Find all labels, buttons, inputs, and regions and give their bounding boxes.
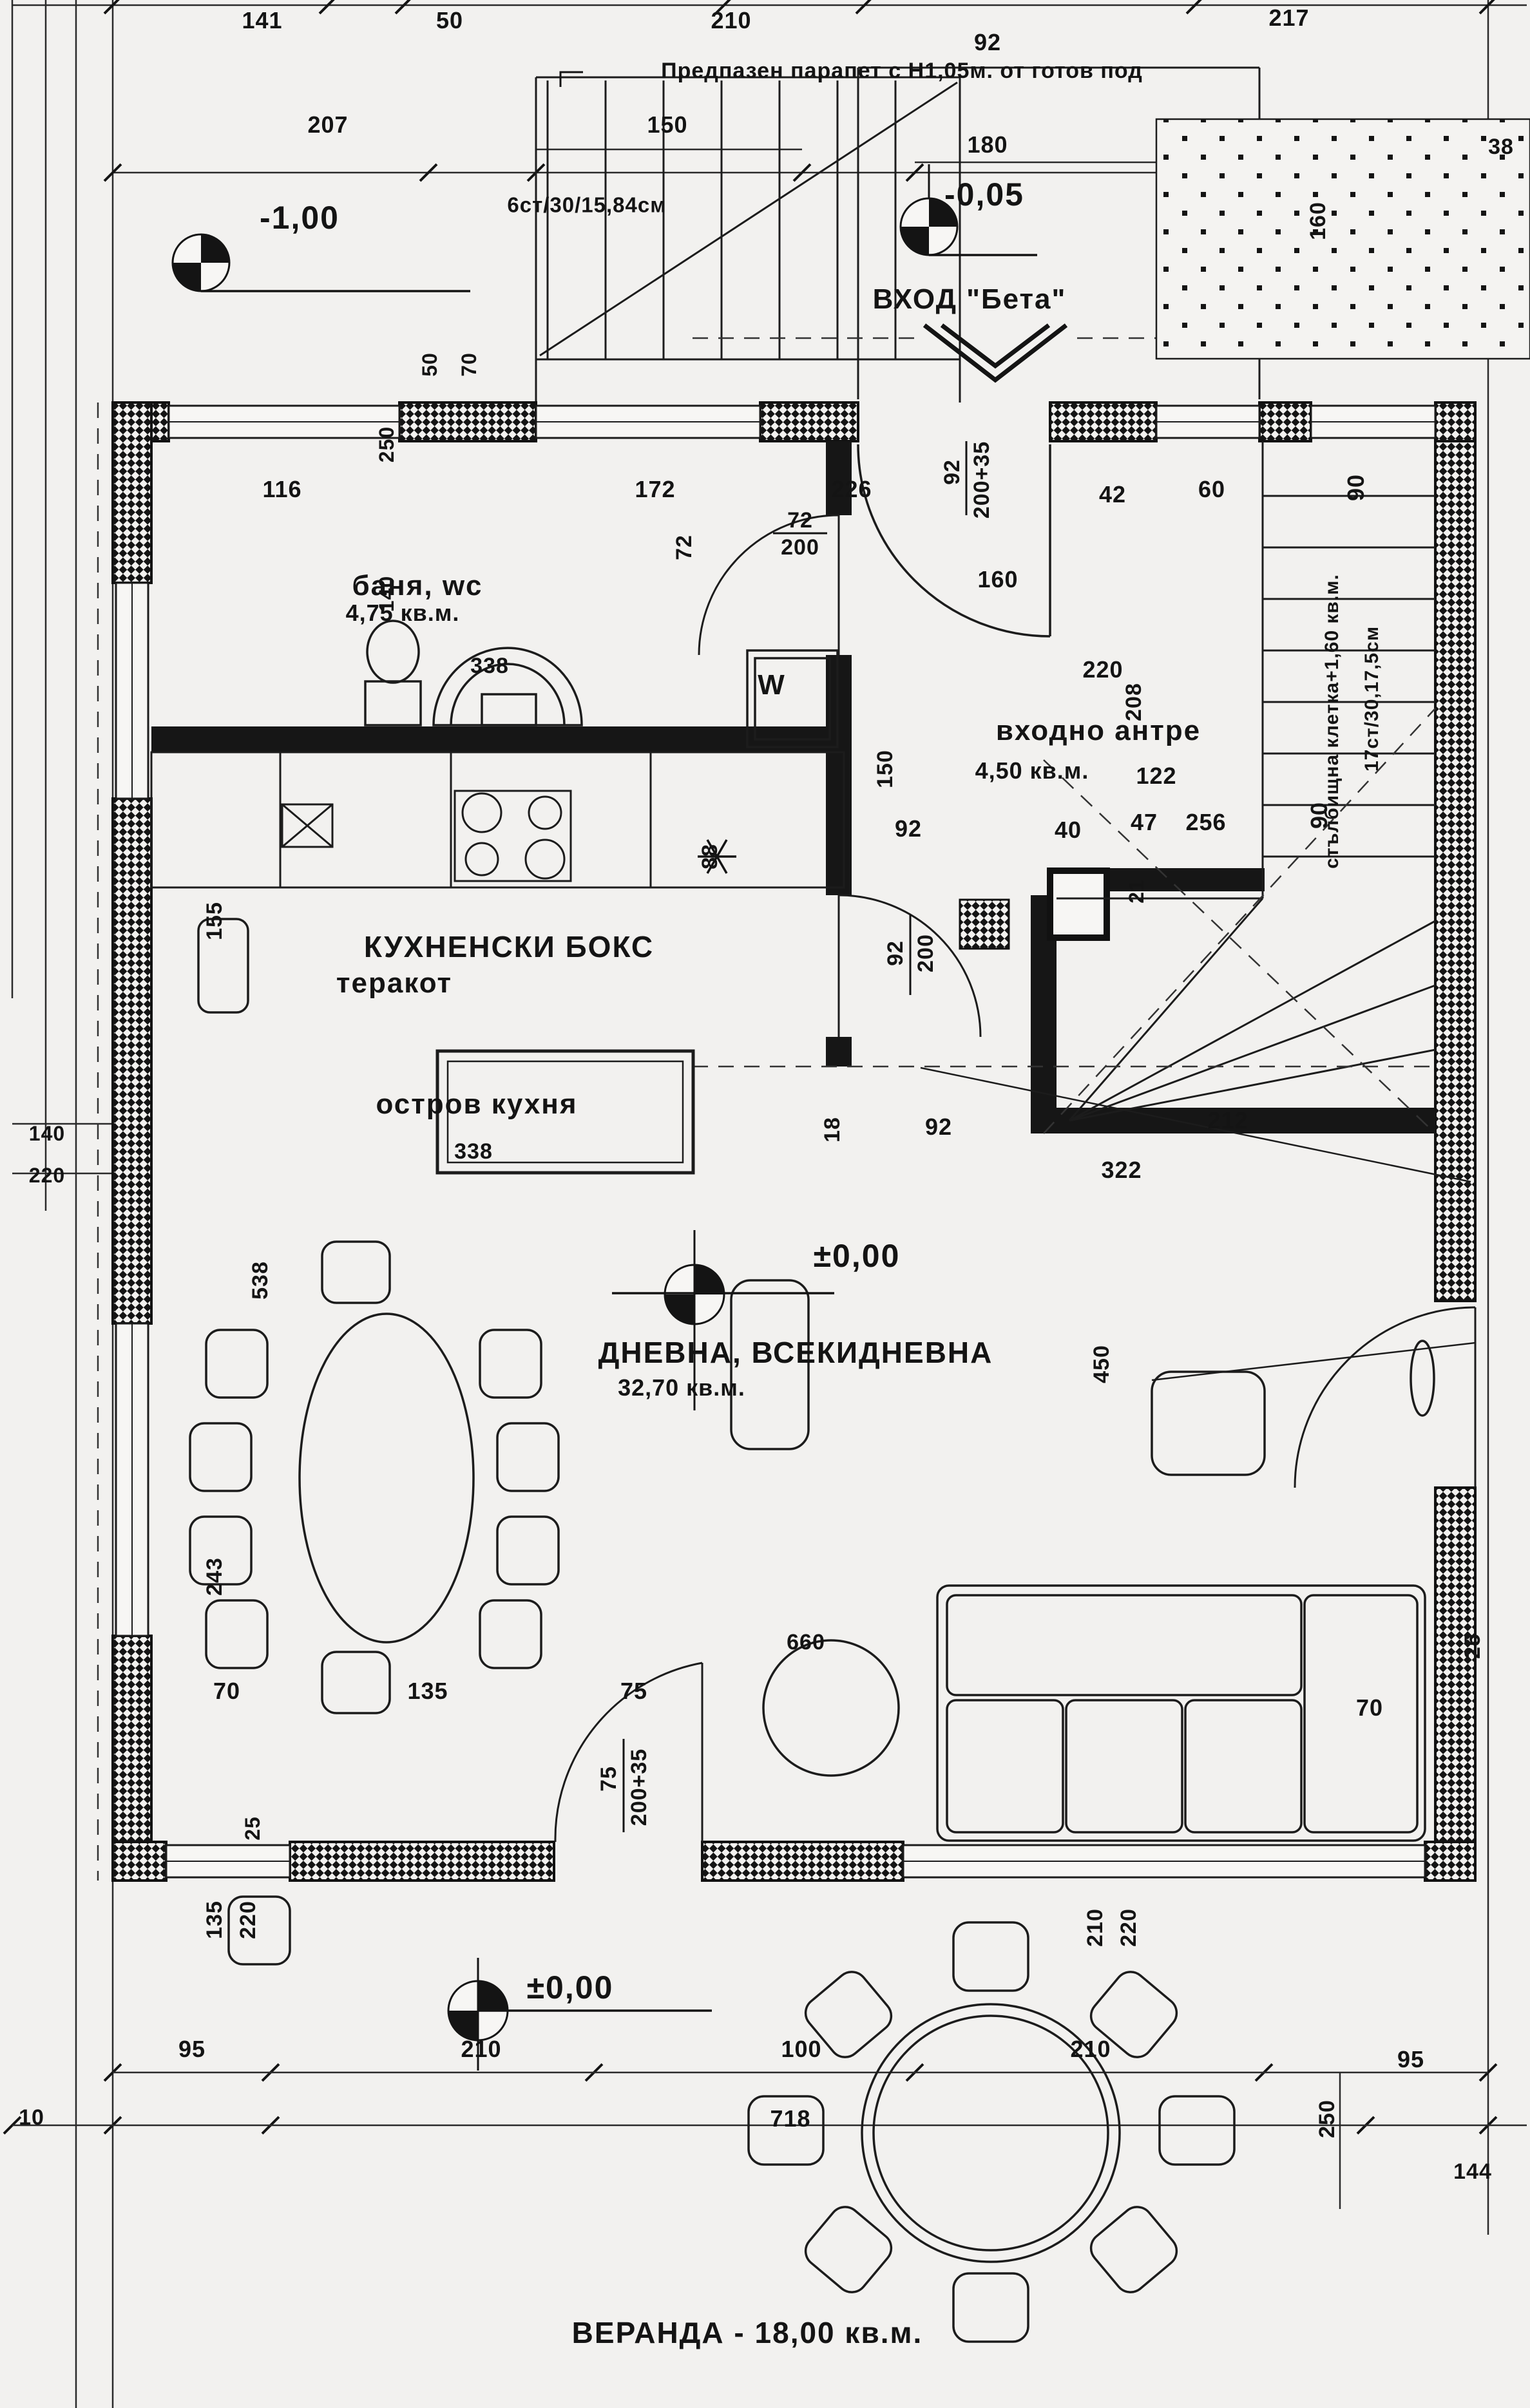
door-72: 72 [787, 509, 813, 531]
bathroom-label: баня, wc [352, 572, 483, 600]
dim-160-hall: 160 [977, 568, 1018, 591]
dim-95-b: 95 [1397, 2048, 1424, 2071]
door-75-w: 75 [598, 1766, 620, 1792]
dim-220-rot-b: 220 [1118, 1908, 1140, 1947]
level-minus-005: -0,05 [944, 178, 1024, 211]
dim-92-hall: 92 [895, 817, 922, 840]
floor-plan-labels: 1415021092217Предпазен парапет с H1,05м.… [0, 0, 1530, 2408]
dim-10: 10 [19, 2107, 44, 2128]
floor-plan-page: 1415021092217Предпазен парапет с H1,05м.… [0, 0, 1530, 2408]
dim-47: 47 [1131, 811, 1158, 834]
dim-50-top: 50 [436, 9, 463, 32]
dim-212: 212 [1207, 1109, 1248, 1132]
living-area: 32,70 кв.м. [618, 1376, 745, 1399]
living-label: ДНЕВНА, ВСЕКИДНЕВНА [598, 1338, 993, 1367]
dim-210-b: 210 [461, 2038, 501, 2061]
dim-21: 21 [1126, 879, 1147, 904]
dim-60: 60 [1198, 478, 1225, 501]
dim-150-stair: 150 [647, 113, 687, 137]
dim-180: 180 [967, 133, 1008, 156]
island-label: остров кухня [376, 1090, 577, 1119]
dim-140-left: 140 [29, 1123, 65, 1144]
dim-660: 660 [787, 1631, 825, 1653]
dim-250-window: 250 [376, 426, 397, 462]
dim-141: 141 [242, 9, 282, 32]
kitchen-label: КУХНЕНСКИ БОКС [364, 932, 654, 962]
dim-92-top: 92 [974, 31, 1001, 54]
dim-72-rot: 72 [673, 535, 695, 560]
kitchen-floor: теракот [336, 969, 452, 998]
dim-210-top: 210 [711, 9, 751, 32]
dim-243: 243 [204, 1557, 225, 1596]
dim-250-veranda: 250 [1316, 2100, 1338, 2138]
dim-140-window: 140 [376, 576, 397, 612]
dim-50-wall: 50 [419, 352, 440, 377]
dim-256: 256 [1185, 811, 1226, 834]
dim-88: 88 [699, 844, 721, 869]
dim-122: 122 [1136, 764, 1176, 788]
dim-92-stair: 92 [925, 1115, 952, 1139]
bathroom-area: 4,75 кв.м. [346, 602, 460, 625]
dim-25-left: 25 [242, 1816, 263, 1841]
dim-70-a: 70 [213, 1680, 240, 1703]
dim-160-terrace: 160 [1307, 202, 1329, 240]
dim-450: 450 [1091, 1345, 1113, 1383]
door-92k-h: 200 [915, 934, 937, 972]
outdoor-stair-note: 6ст/30/15,84см [507, 194, 666, 216]
door-75-h: 200+35 [628, 1749, 650, 1826]
dim-220-rot: 220 [237, 1901, 259, 1939]
dim-25-right: 25 [1462, 1633, 1484, 1659]
dim-338-bath: 338 [470, 655, 509, 677]
dim-40: 40 [1055, 819, 1082, 842]
dim-100: 100 [781, 2038, 821, 2061]
dim-70-wall: 70 [459, 352, 479, 377]
dim-42: 42 [1099, 483, 1126, 506]
parapet-note: Предпазен парапет с H1,05м. от готов под [661, 60, 1143, 82]
level-minus-100: -1,00 [260, 202, 339, 234]
dim-116: 116 [262, 478, 301, 501]
dim-322: 322 [1101, 1159, 1142, 1182]
dim-70-b: 70 [1356, 1696, 1383, 1720]
level-zero-veranda: ±0,00 [527, 1971, 614, 2004]
stairwell-label: стълбищна клетка+1,60 кв.м. [1323, 574, 1342, 869]
dim-210-rot-a: 210 [1084, 1908, 1106, 1947]
dim-338-island: 338 [454, 1141, 493, 1162]
dim-538: 538 [249, 1261, 271, 1300]
entrance-label: ВХОД "Бета" [873, 285, 1067, 314]
dim-718: 718 [770, 2107, 810, 2130]
dim-95-a: 95 [178, 2038, 206, 2061]
washer-label: W [758, 671, 786, 699]
door-72-height: 200 [781, 536, 819, 558]
dim-75-a: 75 [620, 1680, 647, 1703]
dim-38: 38 [1488, 136, 1514, 158]
dim-226: 226 [831, 478, 872, 501]
dim-150-rot: 150 [874, 750, 896, 788]
dim-18: 18 [821, 1117, 843, 1142]
hall-label: входно антре [996, 717, 1201, 745]
dim-135-a: 135 [407, 1680, 448, 1703]
dim-220-left: 220 [29, 1165, 65, 1186]
dim-210-c: 210 [1070, 2038, 1111, 2061]
dim-220-hall: 220 [1082, 658, 1123, 681]
level-zero-living: ±0,00 [814, 1240, 901, 1272]
door-92-w: 92 [941, 459, 963, 485]
dim-155-fridge: 155 [204, 902, 225, 940]
dim-90-top: 90 [1344, 474, 1368, 501]
stairwell-steps: 17ст/30,17,5см [1363, 626, 1382, 772]
dim-172: 172 [635, 478, 675, 501]
dim-217: 217 [1268, 6, 1309, 30]
door-92-h: 200+35 [971, 441, 993, 518]
dim-135-rot: 135 [204, 1901, 225, 1939]
door-92k-w: 92 [885, 940, 906, 966]
dim-207: 207 [307, 113, 348, 137]
hall-area: 4,50 кв.м. [975, 759, 1089, 782]
dim-144: 144 [1453, 2161, 1492, 2183]
veranda-label: ВЕРАНДА - 18,00 кв.м. [572, 2318, 923, 2347]
